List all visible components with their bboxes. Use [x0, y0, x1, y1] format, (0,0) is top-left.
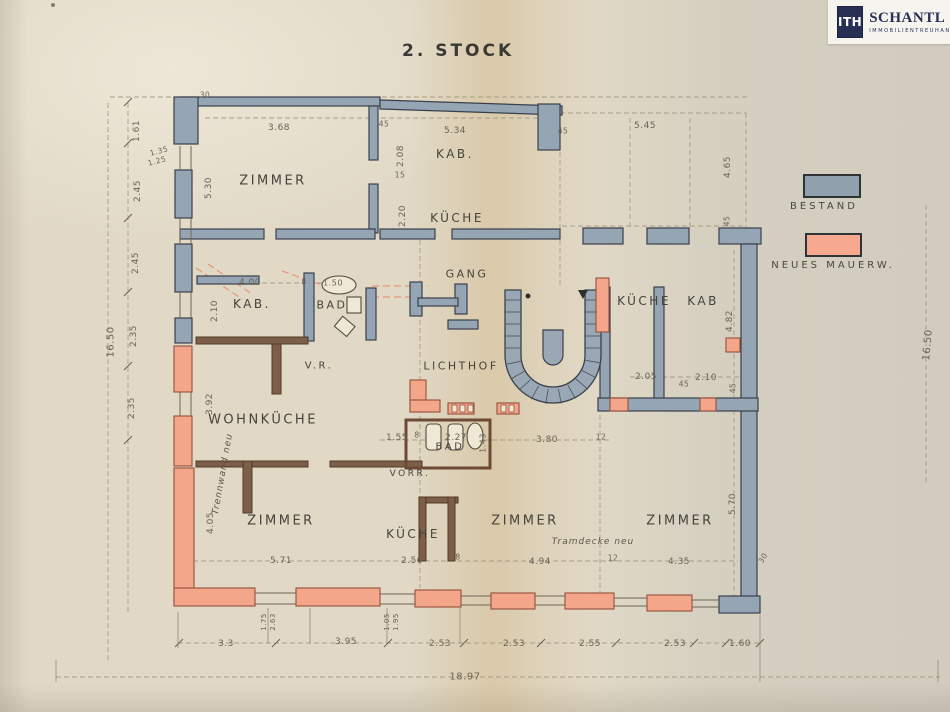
- dimension-label: 1.43: [479, 433, 488, 453]
- dimension-label: 2.56: [401, 556, 423, 566]
- logo-ith-mark: ITH: [837, 6, 863, 38]
- dimension-label: 4.65: [723, 156, 733, 178]
- dimension-label: 8: [414, 431, 419, 440]
- dimension-label: 2.10: [695, 373, 717, 383]
- new-wall-openings: [452, 405, 514, 412]
- dimension-label: 1.61: [132, 120, 142, 142]
- dimension-label: 12: [608, 554, 619, 563]
- dimension-label: 4.05: [206, 512, 216, 534]
- dimension-label: 30: [200, 91, 211, 100]
- legend-swatch-new: [805, 233, 862, 257]
- stair-direction-dot: [526, 294, 531, 299]
- dimension-label: 1.60: [729, 639, 751, 649]
- dimension-label: 5.34: [444, 126, 466, 136]
- annotation-label: Tramdecke neu: [552, 537, 635, 547]
- extension-lines: [56, 608, 938, 682]
- dimension-label: 3.80: [536, 435, 558, 445]
- room-label: KÜCHE: [386, 527, 440, 541]
- room-label: KÜCHE: [617, 294, 671, 308]
- dimension-label: 2.45: [131, 252, 141, 274]
- dimension-label: 5.71: [270, 556, 292, 566]
- dimension-label: 2.35: [127, 397, 137, 419]
- dimension-label: 4.00: [239, 278, 261, 288]
- dimension-label: 2.55: [579, 639, 601, 649]
- dimension-label: 2.53: [503, 639, 525, 649]
- dimension-label: 45: [723, 216, 732, 227]
- dimension-label: 8: [455, 553, 460, 562]
- legend-swatch-existing: [803, 174, 861, 198]
- dimension-label: 4.94: [529, 557, 551, 567]
- room-label: WOHNKÜCHE: [208, 413, 318, 428]
- page-title: 2. STOCK: [402, 41, 514, 61]
- room-label: ZIMMER: [239, 174, 306, 189]
- dimension-label: 3.92: [205, 393, 215, 415]
- dimension-label: 1.75: [260, 613, 268, 631]
- dimension-label: 2.53: [664, 639, 686, 649]
- dimension-label: 4.35: [668, 557, 690, 567]
- dimension-label: 3.68: [268, 123, 290, 133]
- dimension-label: 45: [729, 383, 738, 394]
- dimension-label: 2.10: [210, 300, 220, 322]
- dimension-label: 2.63: [269, 613, 277, 631]
- dimension-label: 5.30: [204, 177, 214, 199]
- dimension-label: 4.82: [725, 310, 735, 332]
- room-label: KAB: [687, 294, 719, 308]
- dimension-label: 2.53: [429, 639, 451, 649]
- dimension-label: 5.45: [634, 121, 656, 131]
- dimension-label: 2.45: [133, 180, 143, 202]
- dimension-label: 2.08: [396, 145, 406, 167]
- room-label: KAB.: [233, 297, 271, 311]
- dimension-label: 8: [301, 278, 306, 287]
- legend-label-new: NEUES MAUERW.: [771, 260, 895, 271]
- logo-subtitle: IMMOBILIENTREUHAND: [869, 29, 950, 34]
- dimension-label: 45: [679, 380, 690, 389]
- staircase: [505, 290, 601, 404]
- dimension-label: 18.97: [449, 672, 480, 683]
- dimension-label: 5.70: [728, 493, 738, 515]
- room-label: GANG: [446, 268, 489, 281]
- dimension-label: 45: [558, 127, 569, 136]
- dimension-label: 2.20: [398, 205, 408, 227]
- room-label: V.R.: [305, 361, 334, 372]
- room-label: KAB.: [436, 147, 474, 161]
- floor-plan-drawing: [0, 0, 950, 712]
- dimension-label: 1.55: [386, 433, 408, 443]
- dimension-label: 2.35: [129, 325, 139, 347]
- dimension-label: 2.05: [635, 372, 657, 382]
- room-label: ZIMMER: [491, 514, 558, 529]
- dimension-label: 45: [379, 120, 390, 129]
- scanned-floor-plan-page: ZIMMERKAB.KÜCHEGANGKAB.BADKÜCHEKABV.R.LI…: [0, 0, 950, 712]
- dimension-label: 15: [395, 171, 406, 180]
- room-label: ZIMMER: [646, 514, 713, 529]
- room-label: BAD: [436, 442, 465, 453]
- legend-label-existing: BESTAND: [790, 201, 858, 212]
- dimension-label: 3.95: [335, 637, 357, 647]
- room-label: LICHTHOF: [423, 360, 498, 373]
- dimension-label: 2.27: [445, 433, 467, 443]
- dimension-label: 16.50: [106, 326, 117, 357]
- dimension-label: 12: [596, 433, 607, 442]
- room-label: KÜCHE: [430, 211, 484, 225]
- room-label: ZIMMER: [247, 514, 314, 529]
- room-label: VORR.: [390, 469, 431, 479]
- dimension-label: 3.3: [218, 639, 234, 649]
- logo-company-name: SCHANTL: [869, 11, 950, 26]
- dimension-label: 1.95: [392, 613, 400, 631]
- company-logo: ITH SCHANTL IMMOBILIENTREUHAND: [828, 0, 950, 44]
- dimension-label: 1.50: [323, 279, 343, 288]
- dimension-label: 1.05: [383, 613, 391, 631]
- room-label: BAD: [316, 299, 347, 312]
